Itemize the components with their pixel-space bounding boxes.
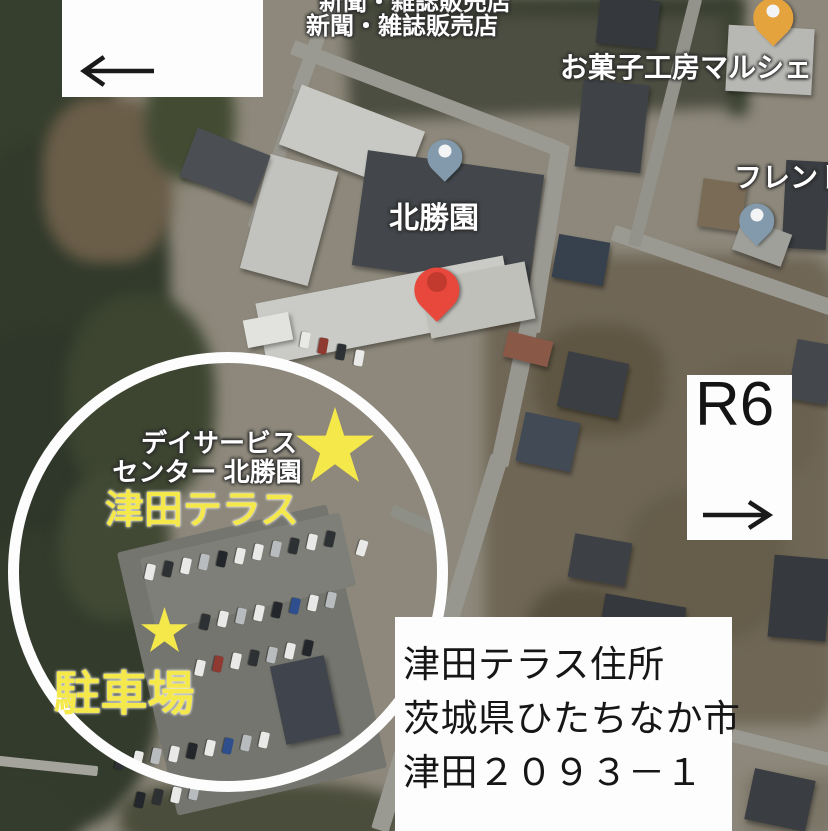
red-pin-destination bbox=[405, 258, 469, 322]
parking-label: 駐車場 bbox=[54, 655, 195, 724]
tsuda-terrace-label: 津田テラス bbox=[105, 479, 299, 535]
pin-body bbox=[732, 196, 782, 246]
house-solar bbox=[552, 234, 611, 286]
map-label-sweets-shop: お菓子工房マルシェ bbox=[560, 46, 812, 86]
address-text: 津田テラス住所 茨城県ひたちなか市 津田２０９３－１ bbox=[395, 617, 732, 801]
right-arrow-icon bbox=[697, 497, 783, 533]
map-label-newspaper-shop: 新聞・雑誌販売店 bbox=[306, 6, 498, 41]
address-line-3: 津田２０９３－１ bbox=[403, 747, 732, 801]
orange-pin-sweets-shop bbox=[745, 0, 801, 46]
address-box: 津田テラス住所 茨城県ひたちなか市 津田２０９３－１ bbox=[395, 617, 732, 831]
pin-dot bbox=[439, 144, 452, 157]
address-line-2: 茨城県ひたちなか市 bbox=[403, 693, 732, 747]
blue-pin-hokushoen bbox=[420, 132, 470, 182]
pin-dot bbox=[427, 272, 447, 292]
pin-dot bbox=[751, 208, 764, 221]
pin-body bbox=[420, 132, 470, 182]
highlight-circle bbox=[8, 352, 448, 792]
r6-route-label: R6 bbox=[695, 369, 774, 440]
blue-pin-furento bbox=[732, 196, 782, 246]
left-arrow-icon bbox=[66, 50, 160, 92]
house bbox=[768, 555, 828, 642]
r6-route-box: R6 bbox=[687, 375, 792, 540]
map-label-furento: フレント bbox=[734, 156, 828, 196]
address-line-1: 津田テラス住所 bbox=[403, 639, 732, 693]
house bbox=[575, 79, 650, 173]
top-left-arrow-box bbox=[62, 0, 263, 97]
map-label-hokushoen: 北勝園 bbox=[389, 193, 479, 237]
satellite-map: 新聞・雑誌販売店 新聞・雑誌販売店 お菓子工房マルシェ フレント 北勝園 デイサ… bbox=[0, 0, 828, 831]
pin-dot bbox=[767, 4, 780, 17]
house bbox=[596, 0, 661, 49]
